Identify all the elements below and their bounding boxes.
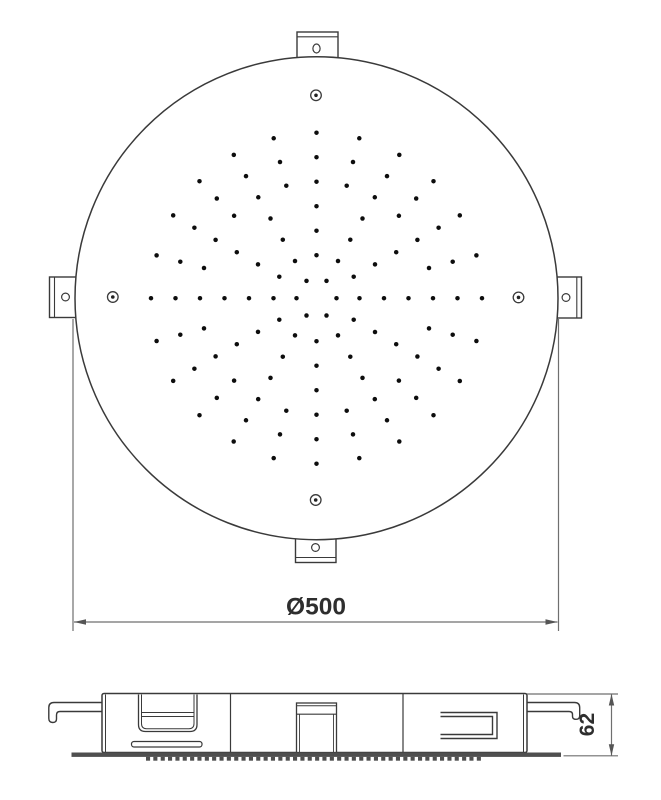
nozzle-dot — [314, 253, 319, 258]
nozzle-dot — [431, 413, 436, 418]
nozzle-dot — [458, 213, 463, 218]
nozzle-tooth — [220, 757, 224, 761]
nozzle-dot — [215, 396, 220, 401]
nozzle-tooth — [425, 757, 429, 761]
nozzle-tooth — [345, 757, 349, 761]
nozzle-dot — [314, 204, 319, 209]
nozzle-dot — [415, 354, 420, 359]
nozzle-dot — [373, 262, 378, 267]
nozzle-dot — [373, 330, 378, 335]
nozzle-tooth — [396, 757, 400, 761]
nozzle-dot — [235, 250, 240, 255]
nozzle-tooth — [330, 757, 334, 761]
nozzle-tooth — [212, 757, 216, 761]
nozzle-dot — [336, 259, 341, 264]
nozzle-dot — [351, 274, 356, 279]
nozzle-dot — [202, 266, 207, 271]
nozzle-dot — [278, 432, 283, 437]
nozzle-dot — [215, 196, 220, 201]
nozzle-tooth — [146, 757, 150, 761]
mounting-bracket-left — [50, 277, 77, 318]
nozzle-dot — [344, 183, 349, 188]
nozzle-tooth — [381, 757, 385, 761]
nozzle-dot — [455, 296, 460, 301]
top-view — [50, 32, 582, 563]
nozzle-dot — [278, 160, 283, 165]
nozzle-dot — [427, 326, 432, 331]
nozzle-dot — [281, 237, 286, 242]
nozzle-tooth — [168, 757, 172, 761]
nozzle-tooth — [264, 757, 268, 761]
nozzle-dot — [284, 183, 289, 188]
nozzle-tooth — [403, 757, 407, 761]
nozzle-dot — [149, 296, 154, 301]
nozzle-dot — [231, 439, 236, 444]
nozzle-dot — [314, 363, 319, 368]
nozzle-dot — [474, 339, 479, 344]
nozzle-tooth — [271, 757, 275, 761]
nozzle-dot — [213, 238, 218, 243]
nozzle-dot — [397, 214, 402, 219]
arrowhead-left — [74, 619, 86, 624]
nozzle-dot — [232, 214, 237, 219]
slot-opening — [132, 742, 203, 748]
nozzle-dot — [235, 342, 240, 347]
nozzle-dot — [415, 238, 420, 243]
nozzle-tooth — [300, 757, 304, 761]
nozzle-dot — [431, 296, 436, 301]
nozzle-dot — [357, 136, 362, 141]
nozzle-dot — [232, 378, 237, 383]
nozzle-tooth — [190, 757, 194, 761]
nozzle-dot — [293, 333, 298, 338]
nozzle-tooth — [352, 757, 356, 761]
nozzle-tooth — [322, 757, 326, 761]
nozzle-dot — [314, 155, 319, 160]
nozzle-dot — [197, 179, 202, 184]
nozzle-dot — [232, 153, 237, 158]
diameter-label: Ø500 — [286, 594, 346, 621]
nozzle-dot — [192, 225, 197, 230]
nozzle-dot — [171, 213, 176, 218]
technical-drawing-sheet: Ø500 — [0, 0, 661, 800]
nozzle-dot — [154, 253, 159, 258]
ceiling-hook-right — [527, 703, 580, 720]
nozzle-dot — [314, 437, 319, 442]
nozzle-tooth — [447, 757, 451, 761]
nozzle-tooth — [293, 757, 297, 761]
nozzle-dot — [373, 397, 378, 402]
nozzle-dot — [360, 216, 365, 221]
nozzle-dot — [458, 379, 463, 384]
nozzle-tooth — [455, 757, 459, 761]
side-view — [49, 694, 580, 761]
arrowhead-down — [609, 744, 614, 756]
nozzle-dot — [385, 418, 390, 423]
nozzle-dot — [277, 317, 282, 322]
nozzle-tooth — [359, 757, 363, 761]
nozzle-dot — [474, 253, 479, 258]
nozzle-tooth — [205, 757, 209, 761]
nozzle-dot — [256, 262, 261, 267]
nozzle-dot — [293, 259, 298, 264]
nozzle-dot — [268, 216, 273, 221]
nozzle-dot — [213, 354, 218, 359]
nozzle-dot — [256, 195, 261, 200]
nozzle-dot — [314, 388, 319, 393]
nozzle-dot — [178, 259, 183, 264]
nozzle-tooth — [477, 757, 481, 761]
nozzle-dot — [397, 439, 402, 444]
nozzle-tooth — [197, 757, 201, 761]
nozzle-dot — [154, 339, 159, 344]
nozzle-tooth — [389, 757, 393, 761]
nozzle-dot — [247, 296, 252, 301]
nozzle-dot — [397, 153, 402, 158]
nozzle-dot — [192, 366, 197, 371]
nozzle-tooth — [242, 757, 246, 761]
nozzle-dot — [304, 279, 309, 284]
height-label: 62 — [576, 713, 599, 736]
nozzle-dot — [436, 225, 441, 230]
shower-face-plate — [75, 57, 558, 540]
nozzle-tooth — [440, 757, 444, 761]
nozzle-dot — [382, 296, 387, 301]
nozzle-dot — [394, 342, 399, 347]
nozzle-tooth — [367, 757, 371, 761]
nozzle-dot — [314, 179, 319, 184]
mounting-bracket-top — [297, 32, 338, 59]
nozzle-tooth — [374, 757, 378, 761]
nozzle-dot — [348, 237, 353, 242]
nozzle-tooth — [161, 757, 165, 761]
shower-head-drawing: Ø500 — [0, 0, 661, 800]
nozzle-dot — [450, 332, 455, 337]
nozzle-dot — [271, 136, 276, 141]
nozzle-dot — [348, 354, 353, 359]
nozzle-dot — [202, 326, 207, 331]
nozzle-dot — [357, 456, 362, 461]
nozzle-tooth — [227, 757, 231, 761]
nozzle-tooth — [469, 757, 473, 761]
nozzle-dot — [244, 418, 249, 423]
nozzle-dot — [385, 174, 390, 179]
nozzle-dot — [314, 228, 319, 233]
mounting-bracket-right — [555, 277, 582, 318]
nozzle-dot — [171, 379, 176, 384]
nozzle-dot — [334, 296, 339, 301]
height-dimension: 62 — [527, 694, 618, 756]
nozzle-dot — [427, 266, 432, 271]
nozzle-tooth — [315, 757, 319, 761]
nozzle-dot — [222, 296, 227, 301]
nozzle-dot — [294, 296, 299, 301]
nozzle-tooth — [278, 757, 282, 761]
nozzle-dot — [480, 296, 485, 301]
nozzle-tooth — [337, 757, 341, 761]
nozzle-dot — [414, 396, 419, 401]
nozzle-dot — [397, 378, 402, 383]
nozzle-dot — [324, 313, 329, 318]
nozzle-dot — [304, 313, 309, 318]
nozzle-dot — [244, 174, 249, 179]
face-plate-edge — [72, 753, 562, 757]
nozzle-dot — [198, 296, 203, 301]
nozzle-dot — [373, 195, 378, 200]
arrowhead-up — [609, 694, 614, 706]
nozzle-dot — [431, 179, 436, 184]
nozzle-dot — [173, 296, 178, 301]
nozzle-dot — [197, 413, 202, 418]
nozzle-dot — [314, 461, 319, 466]
ceiling-hook-left — [49, 703, 102, 723]
nozzle-tooth — [249, 757, 253, 761]
nozzle-dot — [271, 456, 276, 461]
nozzle-dot — [360, 376, 365, 381]
nozzle-tooth — [433, 757, 437, 761]
nozzle-tooth — [411, 757, 415, 761]
nozzle-dot — [394, 250, 399, 255]
nozzle-dot — [256, 397, 261, 402]
nozzle-tooth — [183, 757, 187, 761]
nozzle-dot — [344, 408, 349, 413]
nozzle-dot — [357, 296, 362, 301]
nozzle-dot — [414, 196, 419, 201]
nozzle-dot — [271, 296, 276, 301]
nozzle-tooth — [175, 757, 179, 761]
nozzle-dot — [277, 274, 282, 279]
nozzle-tooth — [256, 757, 260, 761]
nozzle-dot — [324, 279, 329, 284]
nozzle-dot — [351, 317, 356, 322]
nozzle-dot — [268, 376, 273, 381]
nozzle-dot — [351, 160, 356, 165]
nozzle-tooth — [286, 757, 290, 761]
nozzle-dot — [450, 259, 455, 264]
nozzle-tooth — [418, 757, 422, 761]
nozzle-dot — [336, 333, 341, 338]
nozzle-dot — [351, 432, 356, 437]
nozzle-dot — [314, 339, 319, 344]
nozzle-dot — [436, 366, 441, 371]
nozzle-tooth — [153, 757, 157, 761]
nozzle-tooth — [462, 757, 466, 761]
nozzle-dot — [314, 130, 319, 135]
nozzle-tooth — [234, 757, 238, 761]
nozzle-dot — [256, 330, 261, 335]
nozzle-dot — [314, 412, 319, 417]
nozzle-dot — [406, 296, 411, 301]
nozzle-dot — [281, 354, 286, 359]
nozzle-dot — [178, 332, 183, 337]
nozzle-teeth — [146, 757, 481, 761]
nozzle-tooth — [308, 757, 312, 761]
inlet-block — [297, 703, 337, 753]
nozzle-dot — [284, 408, 289, 413]
arrowhead-right — [546, 619, 558, 624]
